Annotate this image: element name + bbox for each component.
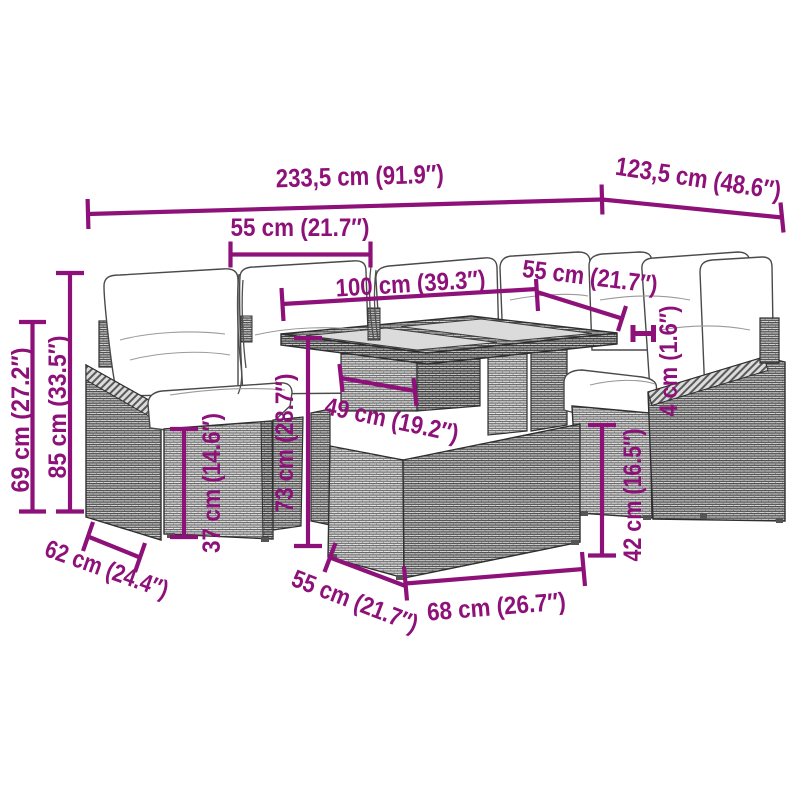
svg-text:69 cm (27.2″): 69 cm (27.2″) bbox=[7, 348, 35, 493]
svg-text:85 cm (33.5″): 85 cm (33.5″) bbox=[44, 336, 72, 479]
svg-text:37 cm (14.6″): 37 cm (14.6″) bbox=[198, 413, 226, 553]
svg-text:4 cm (1.6″): 4 cm (1.6″) bbox=[655, 306, 683, 417]
svg-text:55 cm (21.7″): 55 cm (21.7″) bbox=[231, 214, 370, 242]
svg-text:73 cm (28.7″): 73 cm (28.7″) bbox=[271, 374, 299, 513]
svg-text:233,5 cm (91.9″): 233,5 cm (91.9″) bbox=[275, 159, 444, 194]
svg-text:42 cm (16.5″): 42 cm (16.5″) bbox=[619, 429, 647, 562]
